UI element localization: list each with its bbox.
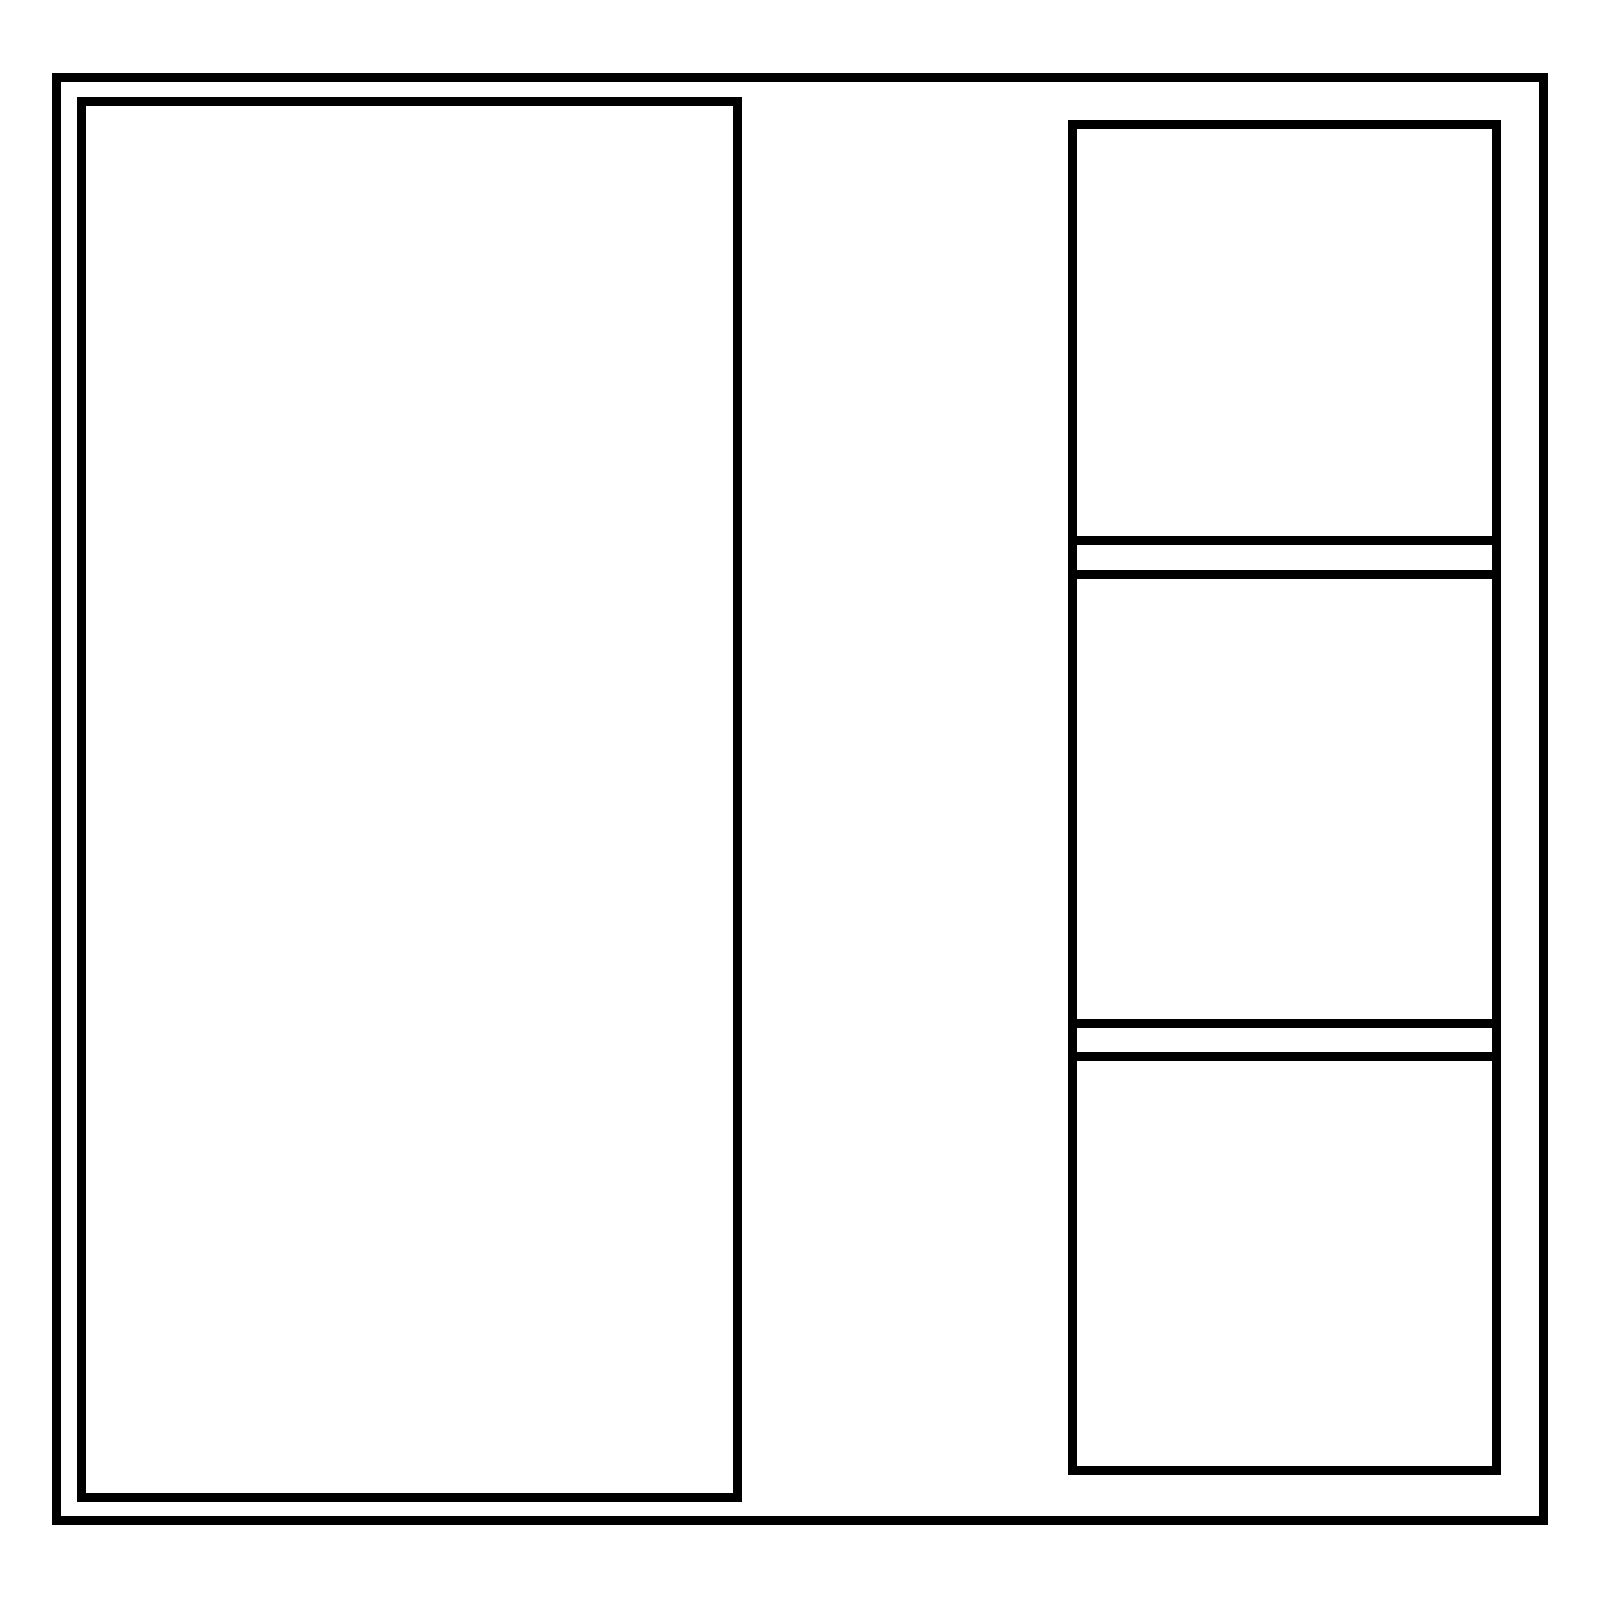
divider-line-2 — [1077, 570, 1492, 579]
right-top-panel — [1077, 129, 1492, 536]
right-middle-panel — [1077, 579, 1492, 1019]
divider-line-1 — [1077, 536, 1492, 545]
spacer-strip-1 — [1077, 545, 1492, 570]
drawing-canvas — [0, 0, 1600, 1600]
divider-line-3 — [1077, 1019, 1492, 1028]
divider-line-4 — [1077, 1052, 1492, 1061]
spacer-strip-2 — [1077, 1028, 1492, 1052]
left-panel-rect — [77, 97, 742, 1502]
right-bottom-panel — [1077, 1061, 1492, 1466]
right-panel-column — [1068, 120, 1501, 1475]
